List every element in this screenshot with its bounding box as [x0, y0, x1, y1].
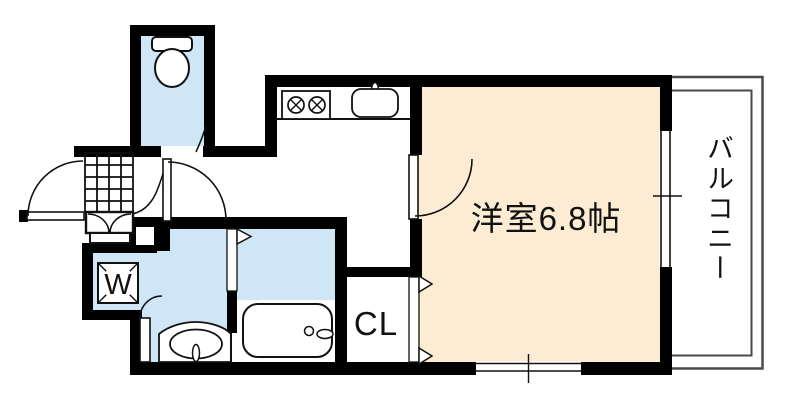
- wall: [660, 265, 672, 375]
- main-room-label: 洋室6.8帖: [436, 199, 656, 239]
- wall: [130, 362, 672, 375]
- washing-machine-label: W: [98, 267, 138, 303]
- wall: [265, 75, 672, 87]
- hall-door-arc: [168, 162, 226, 220]
- wall: [82, 243, 93, 320]
- kitchen: [277, 83, 410, 120]
- bathroom-floor: [237, 229, 335, 302]
- entrance-door-arc: [28, 161, 83, 216]
- stove-icon: [282, 91, 330, 119]
- wall: [74, 146, 161, 157]
- wall: [130, 25, 141, 157]
- bathroom-folding-door: [227, 229, 237, 291]
- genkan-tile-grid: [85, 153, 133, 212]
- pipe-space: [136, 227, 154, 245]
- wall: [335, 217, 347, 367]
- toilet-icon: [155, 49, 189, 87]
- wall: [204, 25, 215, 157]
- room-door-leaf: [409, 155, 418, 219]
- balcony-label: バルコニー: [699, 134, 738, 344]
- entrance-step: [90, 233, 130, 243]
- wall: [227, 291, 237, 333]
- closet-label: CL: [344, 307, 408, 340]
- wall: [410, 219, 422, 277]
- floor-plan: 洋室6.8帖 バルコニー CL W: [0, 0, 800, 403]
- entrance-door-leaf: [27, 212, 84, 220]
- floorplan-svg: [0, 0, 800, 403]
- step-curve: [132, 164, 166, 214]
- hall-door-leaf: [163, 159, 171, 221]
- washbasin-faucet-icon: [193, 345, 200, 362]
- bathtub-handle-icon: [317, 330, 333, 339]
- wall: [410, 75, 422, 155]
- wall: [130, 25, 215, 36]
- kitchen-sink-icon: [352, 89, 398, 117]
- wall: [660, 75, 672, 133]
- washroom-door-leaf: [140, 318, 150, 362]
- bathtub-drain-icon: [305, 327, 314, 336]
- hall: [163, 159, 226, 221]
- closet-sliding-door: [409, 277, 419, 362]
